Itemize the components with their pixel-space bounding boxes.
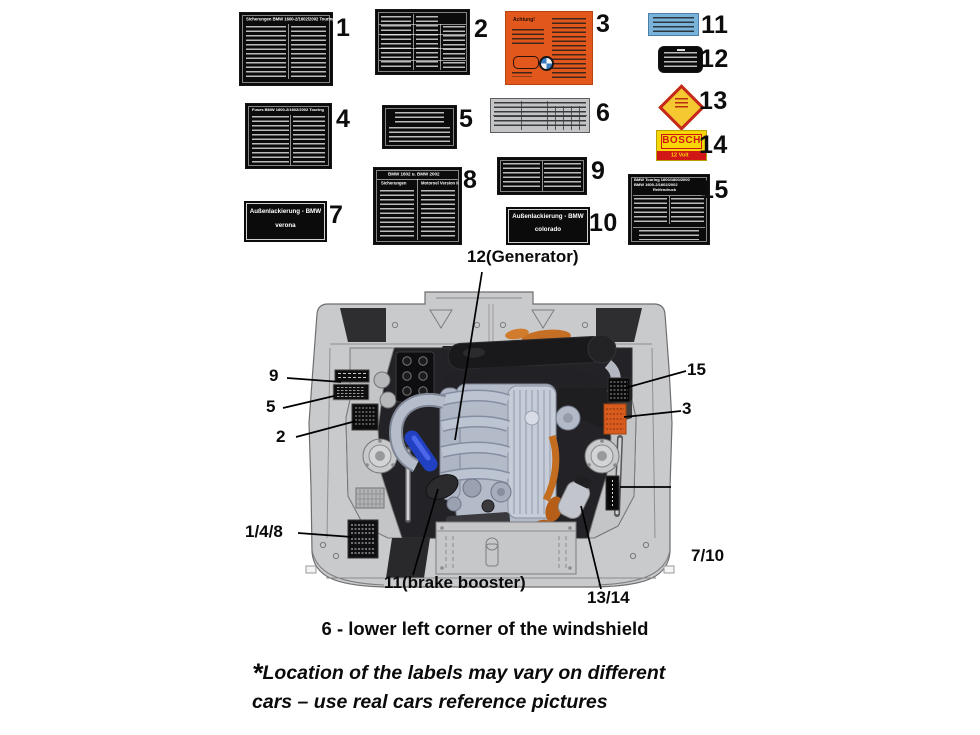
- sticker-15-header2: BMW 1600-2/1602/2002: [634, 183, 678, 187]
- sticker-15: BMW Touring 1600/1800/2000 BMW 1600-2/16…: [629, 175, 709, 244]
- sticker-3-title: Achtung!: [513, 17, 535, 23]
- strut-tower-right: [585, 439, 619, 473]
- footnote-line1-text: Location of the labels may vary on diffe…: [263, 662, 666, 684]
- bmw-roundel-icon: [539, 56, 554, 71]
- sticker-2-text: [443, 26, 465, 70]
- sticker-3-number: 3: [596, 12, 610, 37]
- sticker-1-divider: [288, 24, 289, 79]
- callout-1-4-8: 1/4/8: [245, 523, 283, 542]
- windshield-corner-left: [340, 308, 386, 342]
- sticker-6-gridline: [563, 106, 564, 130]
- sticker-5: [383, 106, 456, 148]
- sticker-3-stamp: [513, 56, 539, 69]
- sticker-6-gridline: [579, 106, 580, 130]
- sticker-3-text: [512, 72, 532, 77]
- sticker-10-number: 10: [589, 211, 618, 236]
- sticker-2-text: [416, 16, 438, 70]
- sticker-11-text: [653, 17, 694, 32]
- sticker-4-text-left: [252, 116, 289, 164]
- sticker-4: Fuses BMW 1600-2/1602/2002 Touring: [246, 104, 331, 168]
- callout-12-generator: 12(Generator): [467, 248, 578, 267]
- callout-5: 5: [266, 398, 275, 417]
- sticker-8-header: BMW 1602 u. BMW 2002: [388, 172, 440, 177]
- bay-sticker-5: [333, 384, 369, 400]
- sticker-8-col1: Sicherungen: [381, 181, 406, 186]
- horn-left: [374, 372, 390, 388]
- sticker-15-divider: [669, 196, 670, 224]
- sticker-6: [491, 99, 589, 132]
- sticker-3-text: [512, 29, 544, 47]
- sticker-4-text-right: [293, 116, 325, 164]
- callout-11-brake-booster: 11(brake booster): [384, 574, 526, 593]
- sticker-12: [659, 47, 702, 72]
- sticker-2-text: [381, 16, 411, 70]
- sticker-5-text: [389, 127, 450, 143]
- distributor: [482, 500, 494, 512]
- sticker-2-number: 2: [474, 17, 488, 42]
- callout-2: 2: [276, 428, 285, 447]
- bay-sticker-3: [604, 404, 626, 434]
- sticker-1-title: Sicherungen BMW 1600-2/1602/2002 Touring: [246, 17, 335, 22]
- sticker-5-number: 5: [459, 107, 473, 132]
- callout-13-14: 13/14: [587, 589, 630, 608]
- sticker-12-number: 12: [700, 47, 729, 72]
- sticker-11: [649, 14, 698, 35]
- sticker-4-title: Fuses BMW 1600-2/1602/2002 Touring: [252, 108, 324, 112]
- sticker-8-col2: Motoroel Version II: [421, 181, 459, 186]
- sticker-14-number: 14: [699, 133, 728, 158]
- sticker-1-text-left: [246, 26, 286, 77]
- sticker-1: Sicherungen BMW 1600-2/1602/2002 Touring: [240, 13, 332, 85]
- sticker-7-line2: verona: [247, 222, 324, 229]
- sticker-12-text: [664, 52, 697, 68]
- footnote-line2: cars – use real cars reference pictures: [252, 691, 608, 714]
- sticker-9-text-right: [544, 163, 581, 189]
- footnote-asterisk: *: [252, 658, 263, 688]
- callout-7-10: 7/10: [691, 547, 724, 566]
- sticker-13: [659, 85, 697, 123]
- sticker-8: BMW 1602 u. BMW 2002 Sicherungen Motoroe…: [374, 168, 461, 244]
- caption-sticker-6-location: 6 - lower left corner of the windshield: [248, 618, 722, 640]
- sticker-6-gridline: [555, 106, 556, 130]
- sticker-10-line2: colorado: [509, 226, 587, 233]
- sticker-11-number: 11: [701, 13, 728, 38]
- sticker-9-text-left: [503, 163, 540, 189]
- sticker-13-number: 13: [699, 89, 728, 114]
- sticker-7-line1: Außenlackierung - BMW: [247, 208, 324, 215]
- sticker-15-gridline: [633, 227, 705, 228]
- bay-sticker-15: [608, 378, 630, 402]
- bay-sticker-9: [335, 370, 369, 382]
- sticker-2: [376, 10, 469, 74]
- sticker-14-sub: 12 Volt: [671, 152, 689, 158]
- sticker-14-brand: BOSCH: [661, 134, 702, 149]
- sticker-8-text-right: [421, 190, 455, 238]
- sticker-4-divider: [290, 115, 291, 165]
- sticker-6-gridline: [493, 115, 587, 116]
- sticker-3-text: [552, 18, 586, 78]
- sticker-15-sub: Reifendruck: [653, 188, 676, 192]
- sticker-6-gridline: [571, 106, 572, 130]
- bay-sticker-7-10: [606, 476, 619, 510]
- sticker-10: Außenlackierung - BMW colorado: [508, 209, 588, 243]
- sticker-7-number: 7: [329, 203, 343, 228]
- sticker-10-line1: Außenlackierung - BMW: [509, 213, 587, 220]
- sticker-15-header: BMW Touring 1600/1800/2000: [634, 178, 690, 182]
- sticker-3: Achtung!: [506, 12, 592, 84]
- sticker-13-text: [675, 97, 688, 108]
- callout-9: 9: [269, 367, 278, 386]
- callout-3: 3: [682, 400, 691, 419]
- sticker-1-number: 1: [336, 16, 350, 41]
- sticker-15-text: [634, 198, 667, 224]
- sticker-12-text: [677, 49, 685, 51]
- sticker-6-number: 6: [596, 101, 610, 126]
- sticker-9: [498, 158, 586, 194]
- callout-15: 15: [687, 361, 706, 380]
- footnote-line1: *Location of the labels may vary on diff…: [252, 655, 665, 686]
- sticker-8-number: 8: [463, 168, 477, 193]
- engine-bay-illustration: [296, 288, 686, 588]
- horn-right: [380, 392, 396, 408]
- sticker-8-divider: [417, 179, 418, 240]
- sticker-1-text-right: [291, 26, 326, 77]
- sticker-7: Außenlackierung - BMW verona: [246, 203, 325, 240]
- sticker-9-number: 9: [591, 159, 605, 184]
- hazard-diamond-icon: [658, 84, 705, 131]
- sticker-2-gridline: [440, 24, 441, 70]
- oil-cap: [525, 411, 539, 425]
- bay-sticker-1-4-8: [348, 520, 378, 558]
- bay-sticker-2: [352, 404, 378, 430]
- sticker-15-text: [639, 230, 699, 240]
- reference-sheet: Sicherungen BMW 1600-2/1602/2002 Touring…: [0, 0, 980, 735]
- sticker-9-divider: [542, 161, 543, 191]
- sticker-4-number: 4: [336, 107, 350, 132]
- sticker-5-text: [395, 112, 444, 124]
- sticker-8-text-left: [380, 190, 414, 238]
- sticker-15-number: 15: [700, 178, 729, 203]
- sticker-2-gridline: [413, 14, 414, 70]
